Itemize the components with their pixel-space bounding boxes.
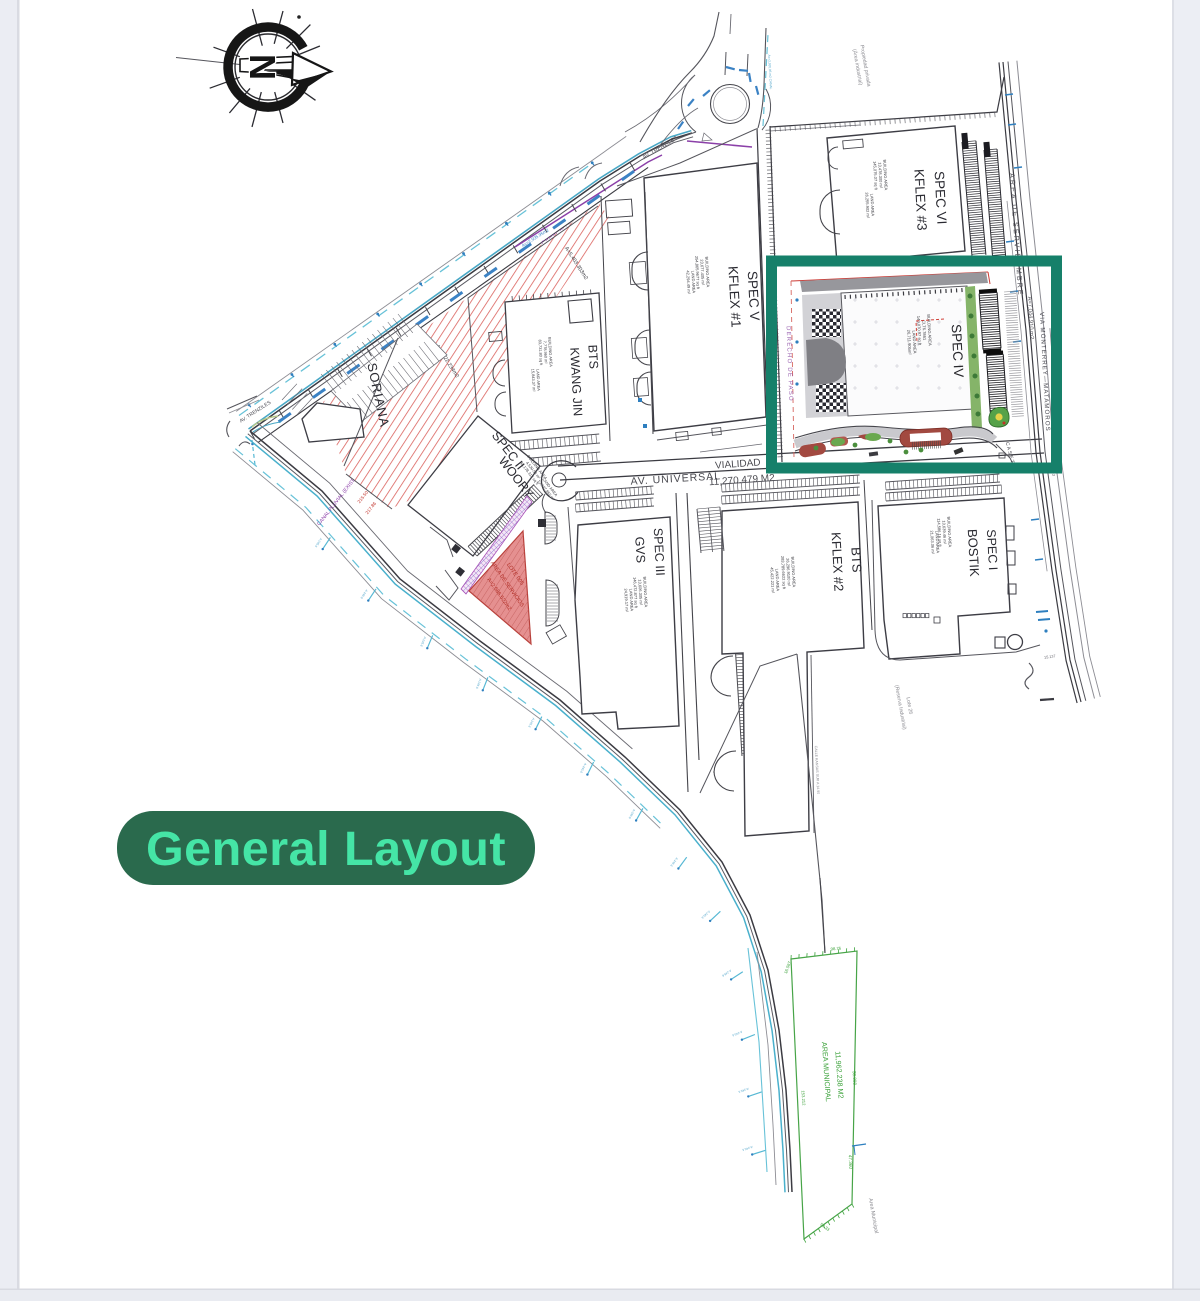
svg-text:GVS: GVS	[632, 536, 647, 563]
svg-text:BTS: BTS	[585, 344, 600, 369]
svg-text:38.298: 38.298	[852, 1071, 858, 1086]
svg-text:BUILDING AREA26,296.9100 m²283: BUILDING AREA26,296.9100 m²283,789.6622 …	[780, 555, 797, 590]
svg-text:LAND AREA42,294.49 m²: LAND AREA42,294.49 m²	[685, 270, 696, 295]
svg-text:47.360: 47.360	[848, 1155, 854, 1170]
svg-text:KFLEX #2: KFLEX #2	[828, 532, 846, 592]
svg-text:BOSTIK: BOSTIK	[965, 529, 982, 578]
svg-text:BUILDING AREA13,478.300 m²145,: BUILDING AREA13,478.300 m²145,075.07 sq …	[872, 159, 889, 191]
svg-text:SPEC I: SPEC I	[984, 529, 1000, 571]
svg-text:BTS: BTS	[848, 547, 864, 573]
svg-text:SPEC IV: SPEC IV	[949, 324, 967, 378]
svg-text:SPEC III: SPEC III	[651, 527, 667, 576]
svg-text:BUILDING AREA7,778.960 m²83,73: BUILDING AREA7,778.960 m²83,731.80 sq ft	[537, 337, 553, 368]
svg-text:SPEC VI: SPEC VI	[932, 171, 950, 225]
svg-text:N: N	[242, 54, 283, 80]
svg-text:LAND AREA21,063.06 m²: LAND AREA21,063.06 m²	[929, 530, 940, 555]
svg-text:General Layout: General Layout	[146, 822, 506, 876]
svg-text:LAND AREA26,255.902 m²: LAND AREA26,255.902 m²	[864, 192, 875, 219]
svg-text:LAND AREA15,843.37 m²: LAND AREA15,843.37 m²	[531, 368, 542, 392]
svg-text:SPEC V: SPEC V	[745, 271, 763, 321]
svg-text:LAND AREA45,422.221 m²: LAND AREA45,422.221 m²	[769, 567, 780, 594]
svg-text:LAND AREA26,711.905m²: LAND AREA26,711.905m²	[906, 329, 917, 355]
svg-text:LAND AREA24,919.17 m²: LAND AREA24,919.17 m²	[623, 588, 634, 613]
